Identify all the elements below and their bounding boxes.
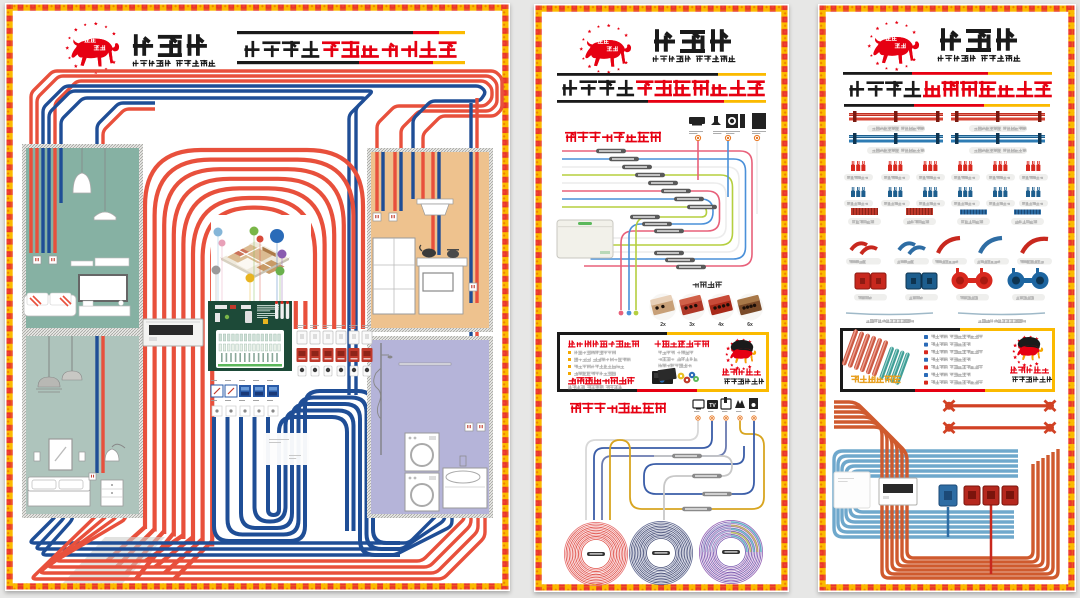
svg-text:3x: 3x — [689, 322, 695, 328]
svg-text:6x: 6x — [747, 322, 753, 328]
svg-text:TV: TV — [709, 403, 716, 409]
svg-text:2x: 2x — [660, 322, 666, 328]
svg-text:4x: 4x — [718, 322, 724, 328]
